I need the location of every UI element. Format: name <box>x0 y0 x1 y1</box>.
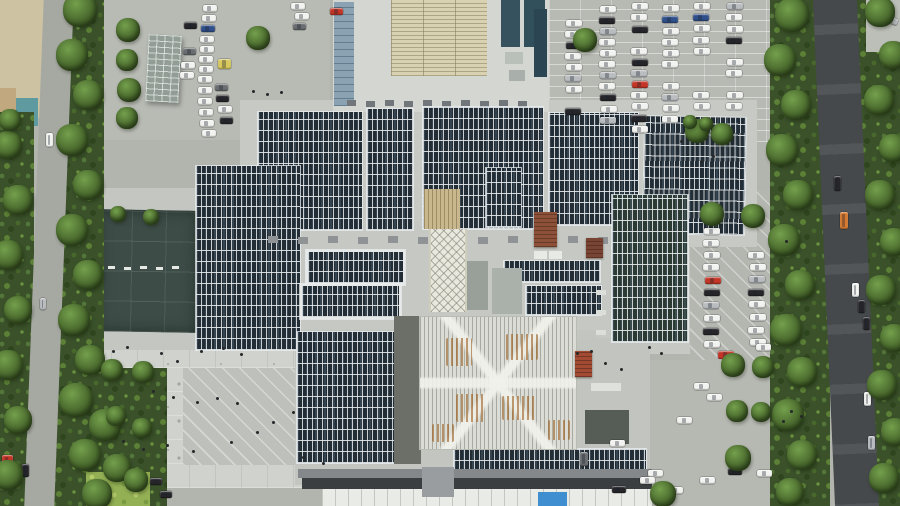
car <box>749 276 765 283</box>
court-mark <box>156 267 163 270</box>
car <box>727 92 743 99</box>
pedestrian-dot <box>620 368 623 371</box>
car <box>201 25 215 32</box>
car <box>566 86 582 93</box>
tree <box>56 214 88 246</box>
tree <box>725 445 751 471</box>
car <box>200 120 214 127</box>
car <box>704 252 720 259</box>
tree <box>4 296 32 324</box>
tree <box>865 0 895 27</box>
car <box>693 37 709 44</box>
tree <box>143 209 159 225</box>
pedestrian-dot <box>176 360 179 363</box>
tree <box>699 117 713 131</box>
solar-array <box>367 109 413 230</box>
car <box>198 87 212 94</box>
car <box>703 328 719 335</box>
court-mark <box>124 267 131 270</box>
car <box>703 302 719 309</box>
pedestrian-dot <box>112 350 115 353</box>
tree <box>116 107 138 129</box>
car <box>600 94 616 101</box>
car <box>693 14 709 21</box>
car <box>293 23 306 30</box>
car <box>566 20 582 27</box>
car <box>199 56 213 63</box>
car <box>203 5 217 12</box>
hall-navy-strip <box>534 9 547 77</box>
car <box>727 59 743 66</box>
car <box>632 103 648 110</box>
vent <box>366 101 375 107</box>
car <box>200 36 214 43</box>
rooftop-unit <box>534 251 547 259</box>
parapet-mark <box>596 330 606 335</box>
tree <box>124 468 148 492</box>
car <box>601 106 617 113</box>
shadow-band <box>302 478 652 489</box>
pedestrian-dot <box>216 397 219 400</box>
tree <box>69 439 101 471</box>
car <box>704 289 720 296</box>
tree <box>785 270 815 300</box>
car <box>663 50 679 57</box>
tree <box>700 202 724 226</box>
pedestrian-dot <box>576 352 579 355</box>
car <box>600 117 616 124</box>
tree <box>56 124 88 156</box>
car <box>694 3 710 10</box>
car <box>663 83 679 90</box>
car <box>599 61 615 68</box>
car <box>215 84 228 91</box>
tree <box>246 26 270 50</box>
tree <box>721 353 745 377</box>
car <box>631 115 647 122</box>
car <box>631 14 647 21</box>
car <box>868 436 875 450</box>
car <box>662 94 678 101</box>
tree <box>787 357 817 387</box>
car <box>580 452 588 466</box>
roof-mark <box>591 383 621 391</box>
pedestrian-dot <box>712 155 715 158</box>
solar-array <box>526 286 601 315</box>
pedestrian-dot <box>172 396 175 399</box>
pedestrian-dot <box>590 350 593 353</box>
solar-array <box>297 332 395 463</box>
tree <box>768 224 800 256</box>
tree <box>879 41 900 69</box>
car <box>700 477 715 484</box>
car <box>749 301 765 308</box>
tree <box>764 44 796 76</box>
car <box>295 13 309 20</box>
tree <box>783 180 813 210</box>
tree <box>880 228 900 256</box>
car <box>600 72 616 79</box>
pedestrian-dot <box>272 421 275 424</box>
pedestrian-dot <box>280 91 283 94</box>
car <box>704 315 720 322</box>
car <box>40 298 46 310</box>
roof-stain <box>467 261 488 310</box>
hall-ribbed-roof <box>391 0 487 76</box>
pedestrian-dot <box>700 160 703 163</box>
pedestrian-dot <box>322 462 325 465</box>
skylight-blue <box>538 492 567 506</box>
car <box>662 39 678 46</box>
car <box>858 300 865 313</box>
rust-streak <box>506 334 538 360</box>
car <box>632 126 648 133</box>
car <box>218 59 231 69</box>
car <box>202 130 216 137</box>
pedestrian-dot <box>680 140 683 143</box>
tree <box>781 90 811 120</box>
tree <box>58 304 90 336</box>
rust-streak <box>548 420 570 440</box>
rooftop-unit <box>418 237 428 244</box>
car <box>600 50 616 57</box>
car <box>330 8 343 15</box>
tree <box>116 18 140 42</box>
car <box>220 117 233 124</box>
service-yard <box>183 368 303 465</box>
car <box>599 39 615 46</box>
pedestrian-dot <box>166 444 169 447</box>
car <box>750 264 766 271</box>
court-mark <box>172 266 179 269</box>
car <box>726 14 742 21</box>
tree <box>59 383 93 417</box>
car <box>834 176 841 191</box>
car <box>750 314 766 321</box>
car <box>610 440 625 447</box>
car <box>726 103 742 110</box>
car <box>663 105 679 112</box>
rooftop-unit <box>478 237 488 244</box>
car <box>694 25 710 32</box>
tree <box>132 361 154 383</box>
car <box>183 48 196 55</box>
rooftop-unit <box>549 251 562 259</box>
car <box>663 5 679 12</box>
pedestrian-dot <box>292 411 295 414</box>
hall-blue-eave <box>334 2 354 106</box>
court-mark <box>108 266 115 269</box>
vent <box>347 100 356 106</box>
pedestrian-dot <box>196 401 199 404</box>
lower-roof <box>322 489 652 506</box>
tree <box>573 28 597 52</box>
truss-walkway <box>429 229 467 312</box>
car <box>216 95 229 102</box>
car <box>748 327 764 334</box>
car <box>202 15 216 22</box>
pedestrian-dot <box>648 346 651 349</box>
car <box>707 394 722 401</box>
pedestrian-dot <box>660 352 663 355</box>
pedestrian-dot <box>192 450 195 453</box>
tree <box>867 370 897 400</box>
car <box>599 83 615 90</box>
rooftop-unit <box>508 236 518 243</box>
court-mark <box>140 266 147 269</box>
pedestrian-dot <box>785 240 788 243</box>
tree <box>73 260 103 290</box>
car <box>150 478 162 485</box>
car <box>703 264 719 271</box>
tree <box>110 206 126 222</box>
car <box>600 28 616 35</box>
car <box>565 53 581 60</box>
pedestrian-dot <box>142 448 145 451</box>
tree <box>56 39 88 71</box>
vent <box>461 100 470 106</box>
car <box>648 470 663 477</box>
rust-streak <box>456 394 484 422</box>
car <box>662 16 678 23</box>
pedestrian-dot <box>122 440 125 443</box>
car <box>565 75 581 82</box>
car <box>184 22 197 29</box>
car <box>727 26 743 33</box>
solar-array-framed <box>306 250 405 285</box>
dark-court <box>96 209 198 333</box>
tree <box>866 275 896 305</box>
car <box>694 103 710 110</box>
car <box>160 491 172 498</box>
rooftop-unit <box>298 237 308 244</box>
car <box>600 6 616 13</box>
dark-roof-strip <box>394 316 421 464</box>
tree <box>776 478 804 506</box>
tree <box>881 418 900 446</box>
car <box>612 486 626 493</box>
pedestrian-dot <box>126 346 129 349</box>
vent <box>423 100 432 106</box>
tree <box>879 134 900 162</box>
rooftop-unit <box>509 70 525 81</box>
car <box>748 252 764 259</box>
car <box>181 62 195 69</box>
solar-array <box>486 168 521 227</box>
pedestrian-dot <box>230 441 233 444</box>
rooftop-unit <box>328 236 338 243</box>
car <box>705 277 721 284</box>
car <box>757 470 772 477</box>
tree <box>4 406 32 434</box>
tree <box>864 85 894 115</box>
tree <box>106 406 126 426</box>
tree <box>775 0 809 32</box>
car <box>677 417 692 424</box>
pedestrian-dot <box>200 350 203 353</box>
solar-array <box>612 195 688 342</box>
car <box>748 289 764 296</box>
tree <box>741 204 765 228</box>
pedestrian-dot <box>236 402 239 405</box>
tan-structure <box>424 189 460 229</box>
tree <box>711 123 733 145</box>
pedestrian-dot <box>604 362 607 365</box>
edge-band <box>298 469 652 478</box>
car <box>218 106 232 113</box>
tree <box>752 356 774 378</box>
tree <box>73 80 103 110</box>
vent <box>404 101 413 107</box>
car <box>726 70 742 77</box>
pedestrian-dot <box>252 90 255 93</box>
tree <box>683 115 697 129</box>
aerial-photo <box>0 0 900 506</box>
tree <box>751 402 771 422</box>
rust-streak <box>446 338 472 366</box>
tree <box>116 49 138 71</box>
hall-navy-roof <box>501 0 520 47</box>
car <box>631 48 647 55</box>
car <box>640 477 655 484</box>
car <box>199 109 213 116</box>
car <box>704 341 720 348</box>
car <box>565 108 581 115</box>
vent <box>499 100 508 106</box>
car <box>703 240 719 247</box>
tree <box>117 78 141 102</box>
car <box>632 26 648 33</box>
car <box>632 59 648 66</box>
car <box>663 28 679 35</box>
car <box>199 66 213 73</box>
car <box>631 70 647 77</box>
car <box>631 92 647 99</box>
rooftop-unit <box>358 237 368 244</box>
car <box>180 72 194 79</box>
car <box>632 3 648 10</box>
rooftop-box <box>422 467 454 497</box>
tree <box>770 314 802 346</box>
rooftop-unit <box>505 52 523 64</box>
car <box>566 64 582 71</box>
car <box>726 37 742 44</box>
pedestrian-dot <box>790 410 793 413</box>
dark-unit <box>585 410 629 444</box>
car <box>694 383 709 390</box>
car <box>852 283 859 297</box>
car <box>693 92 709 99</box>
tree <box>0 109 21 131</box>
rust-streak <box>502 396 536 420</box>
tree <box>101 359 123 381</box>
tree <box>787 440 817 470</box>
car <box>22 464 29 477</box>
tree <box>132 418 152 438</box>
car <box>198 76 212 83</box>
tree <box>650 481 676 506</box>
car <box>840 212 848 229</box>
rooftop-unit <box>388 236 398 243</box>
car <box>46 133 53 147</box>
rooftop-unit <box>568 236 578 243</box>
tree <box>82 479 112 506</box>
car <box>632 81 648 88</box>
tree <box>73 170 103 200</box>
pedestrian-dot <box>256 431 259 434</box>
tree <box>880 324 900 352</box>
car <box>662 61 678 68</box>
pedestrian-dot <box>152 390 155 393</box>
rooftop-unit <box>268 236 278 243</box>
tree <box>3 185 33 215</box>
pedestrian-dot <box>800 415 803 418</box>
car <box>662 116 678 123</box>
car <box>694 48 710 55</box>
car <box>198 98 212 105</box>
car <box>599 17 615 24</box>
car <box>291 3 305 10</box>
parapet-mark <box>596 310 606 315</box>
tree <box>726 400 748 422</box>
tree <box>766 134 798 166</box>
parking-canopy <box>145 34 181 103</box>
solar-array-framed <box>300 284 401 319</box>
car <box>863 317 870 330</box>
parapet-mark <box>596 290 606 295</box>
roof-stain <box>492 268 522 314</box>
vent <box>385 100 394 106</box>
tree <box>869 463 899 493</box>
pedestrian-dot <box>782 420 785 423</box>
pedestrian-dot <box>222 347 225 350</box>
pedestrian-dot <box>302 456 305 459</box>
solar-array <box>196 166 300 350</box>
tree <box>865 180 895 210</box>
car <box>756 344 771 351</box>
car <box>704 228 720 235</box>
pedestrian-dot <box>266 93 269 96</box>
rust-streak <box>432 424 454 442</box>
rust-structure <box>534 212 557 247</box>
car <box>727 3 743 10</box>
car <box>200 46 214 53</box>
pedestrian-dot <box>160 352 163 355</box>
pedestrian-dot <box>240 353 243 356</box>
rust-structure <box>586 238 603 258</box>
